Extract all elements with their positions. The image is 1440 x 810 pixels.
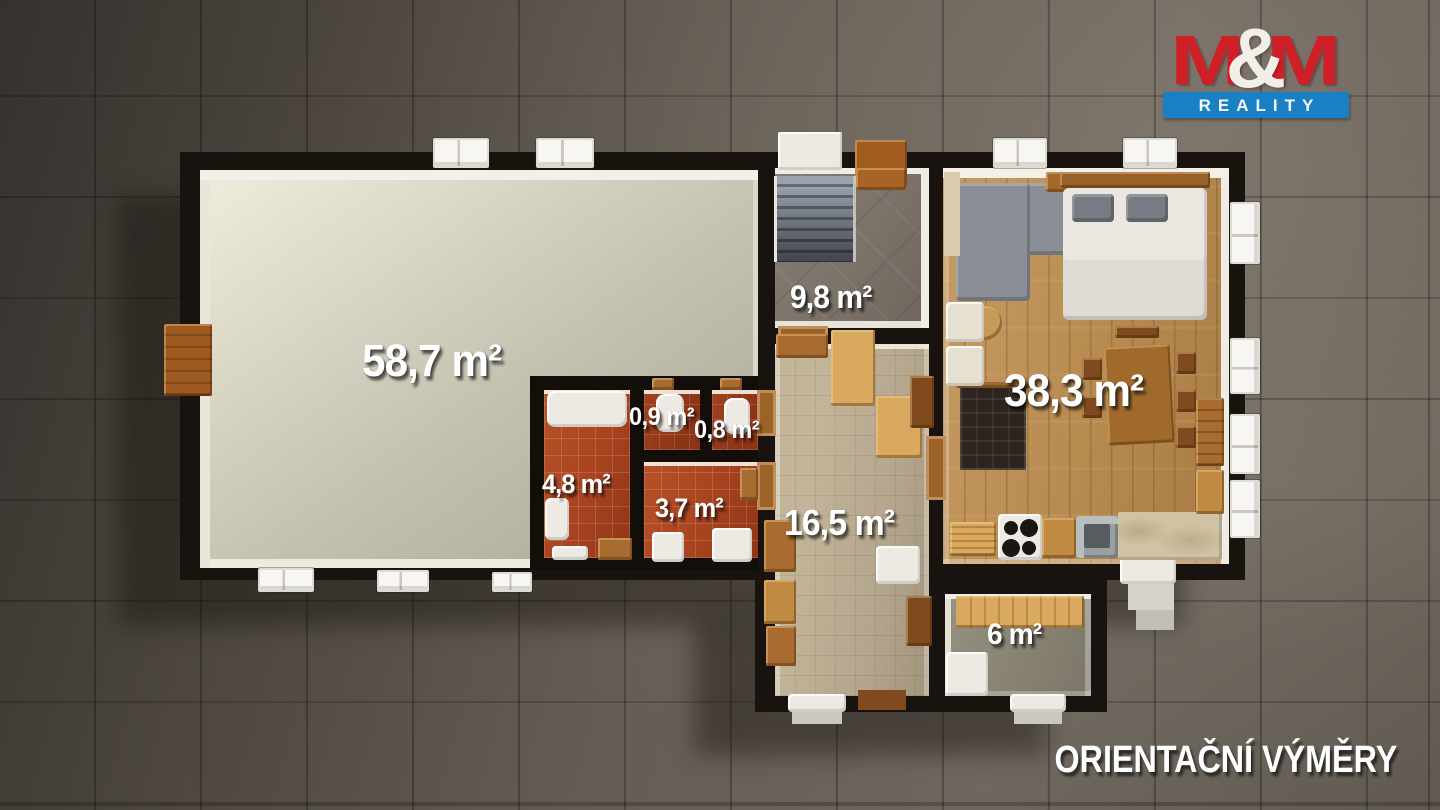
logo-mm-wordmark: M & M <box>1160 26 1352 96</box>
label-living-kitchen-area: 38,3 m² <box>1004 368 1143 413</box>
bed-pillow-2 <box>1126 194 1168 222</box>
kitchen-tall-unit-1 <box>1196 398 1224 466</box>
armchair-2 <box>946 346 984 386</box>
window-right-3 <box>1230 414 1260 474</box>
wc-a-shelf <box>652 378 674 390</box>
entry-door-porch <box>778 132 842 170</box>
window-right-1 <box>1230 202 1260 264</box>
kitchen-exit-step-1 <box>1128 584 1174 610</box>
bathtub <box>547 391 627 427</box>
extension-door-2-step <box>1014 712 1062 724</box>
label-storage-area: 6 m² <box>987 620 1041 650</box>
hall-cabinet-dark <box>910 376 934 428</box>
label-entry-area: 9,8 m² <box>790 281 871 313</box>
window-right-4 <box>1230 480 1260 538</box>
dining-bench <box>1115 326 1159 338</box>
dining-chair-3 <box>1176 352 1196 374</box>
kitchen-counter-stone <box>1118 512 1222 560</box>
footer-caption: ORIENTAČNÍ VÝMĚRY <box>1054 741 1397 779</box>
sofa-chaise <box>956 183 1030 301</box>
kitchen-tall-unit-2 <box>1196 470 1224 514</box>
hall-wardrobe-1 <box>831 330 875 406</box>
window-top-3 <box>993 138 1047 168</box>
kitchen-sink-basin <box>1084 524 1110 548</box>
window-top-2 <box>536 138 594 168</box>
dining-chair-4 <box>1176 390 1196 412</box>
bathroom-sink <box>545 498 569 540</box>
label-utility-area: 3,7 m² <box>655 495 723 522</box>
window-bottom-1 <box>258 568 314 592</box>
storage-cabinet <box>946 652 988 696</box>
tall-wardrobe <box>944 172 960 256</box>
entry-bench <box>856 168 906 190</box>
kitchen-exit-step-2 <box>1136 610 1174 630</box>
bathroom-bench <box>598 538 632 560</box>
hall-shoe-cabinet <box>876 546 920 584</box>
hall-cabinet-3 <box>766 626 796 666</box>
side-entrance-door <box>164 324 212 396</box>
extension-door-1 <box>788 694 846 712</box>
extension-door-2 <box>1010 694 1066 712</box>
doorway-hall-utility <box>757 462 776 510</box>
label-hallway-area: 16,5 m² <box>784 505 894 541</box>
label-bathroom-area: 4,8 m² <box>542 471 610 498</box>
label-wc-b-area: 0,8 m² <box>694 418 759 443</box>
hall-cabinet-4 <box>906 596 932 646</box>
floor-plan-render: 58,7 m² 9,8 m² 38,3 m² 0,9 m² 0,8 m² 4,8… <box>0 0 1440 810</box>
doorway-hall-wc <box>757 390 776 436</box>
washing-machine <box>712 528 752 562</box>
bed-pillow-1 <box>1072 194 1114 222</box>
window-right-2 <box>1230 338 1260 394</box>
bed-headboard <box>1060 172 1210 188</box>
label-wc-a-area: 0,9 m² <box>629 405 694 430</box>
window-top-4 <box>1123 138 1177 168</box>
window-bottom-2 <box>377 570 429 592</box>
label-living-area: 58,7 m² <box>362 338 501 383</box>
kitchen-stove <box>998 514 1042 560</box>
basement-staircase <box>777 176 853 262</box>
window-bottom-3 <box>492 572 532 592</box>
hall-bench <box>776 334 828 358</box>
armchair-1 <box>946 302 984 342</box>
bathroom-door <box>552 546 588 560</box>
utility-sink <box>652 532 684 562</box>
utility-shelf <box>740 468 758 500</box>
planter-box <box>858 690 906 710</box>
window-top-1 <box>433 138 489 168</box>
hall-cabinet-2 <box>764 580 796 624</box>
doorway-hall-living-kitchen <box>926 436 946 500</box>
logo-ampersand: & <box>1226 16 1287 100</box>
extension-door-1-step <box>792 712 842 724</box>
dining-chair-5 <box>1176 426 1196 448</box>
dish-rack <box>950 522 996 556</box>
mm-reality-logo: M & M REALITY <box>1160 26 1352 122</box>
kitchen-counter-wood <box>1042 518 1076 558</box>
wc-b-shelf <box>720 378 742 390</box>
